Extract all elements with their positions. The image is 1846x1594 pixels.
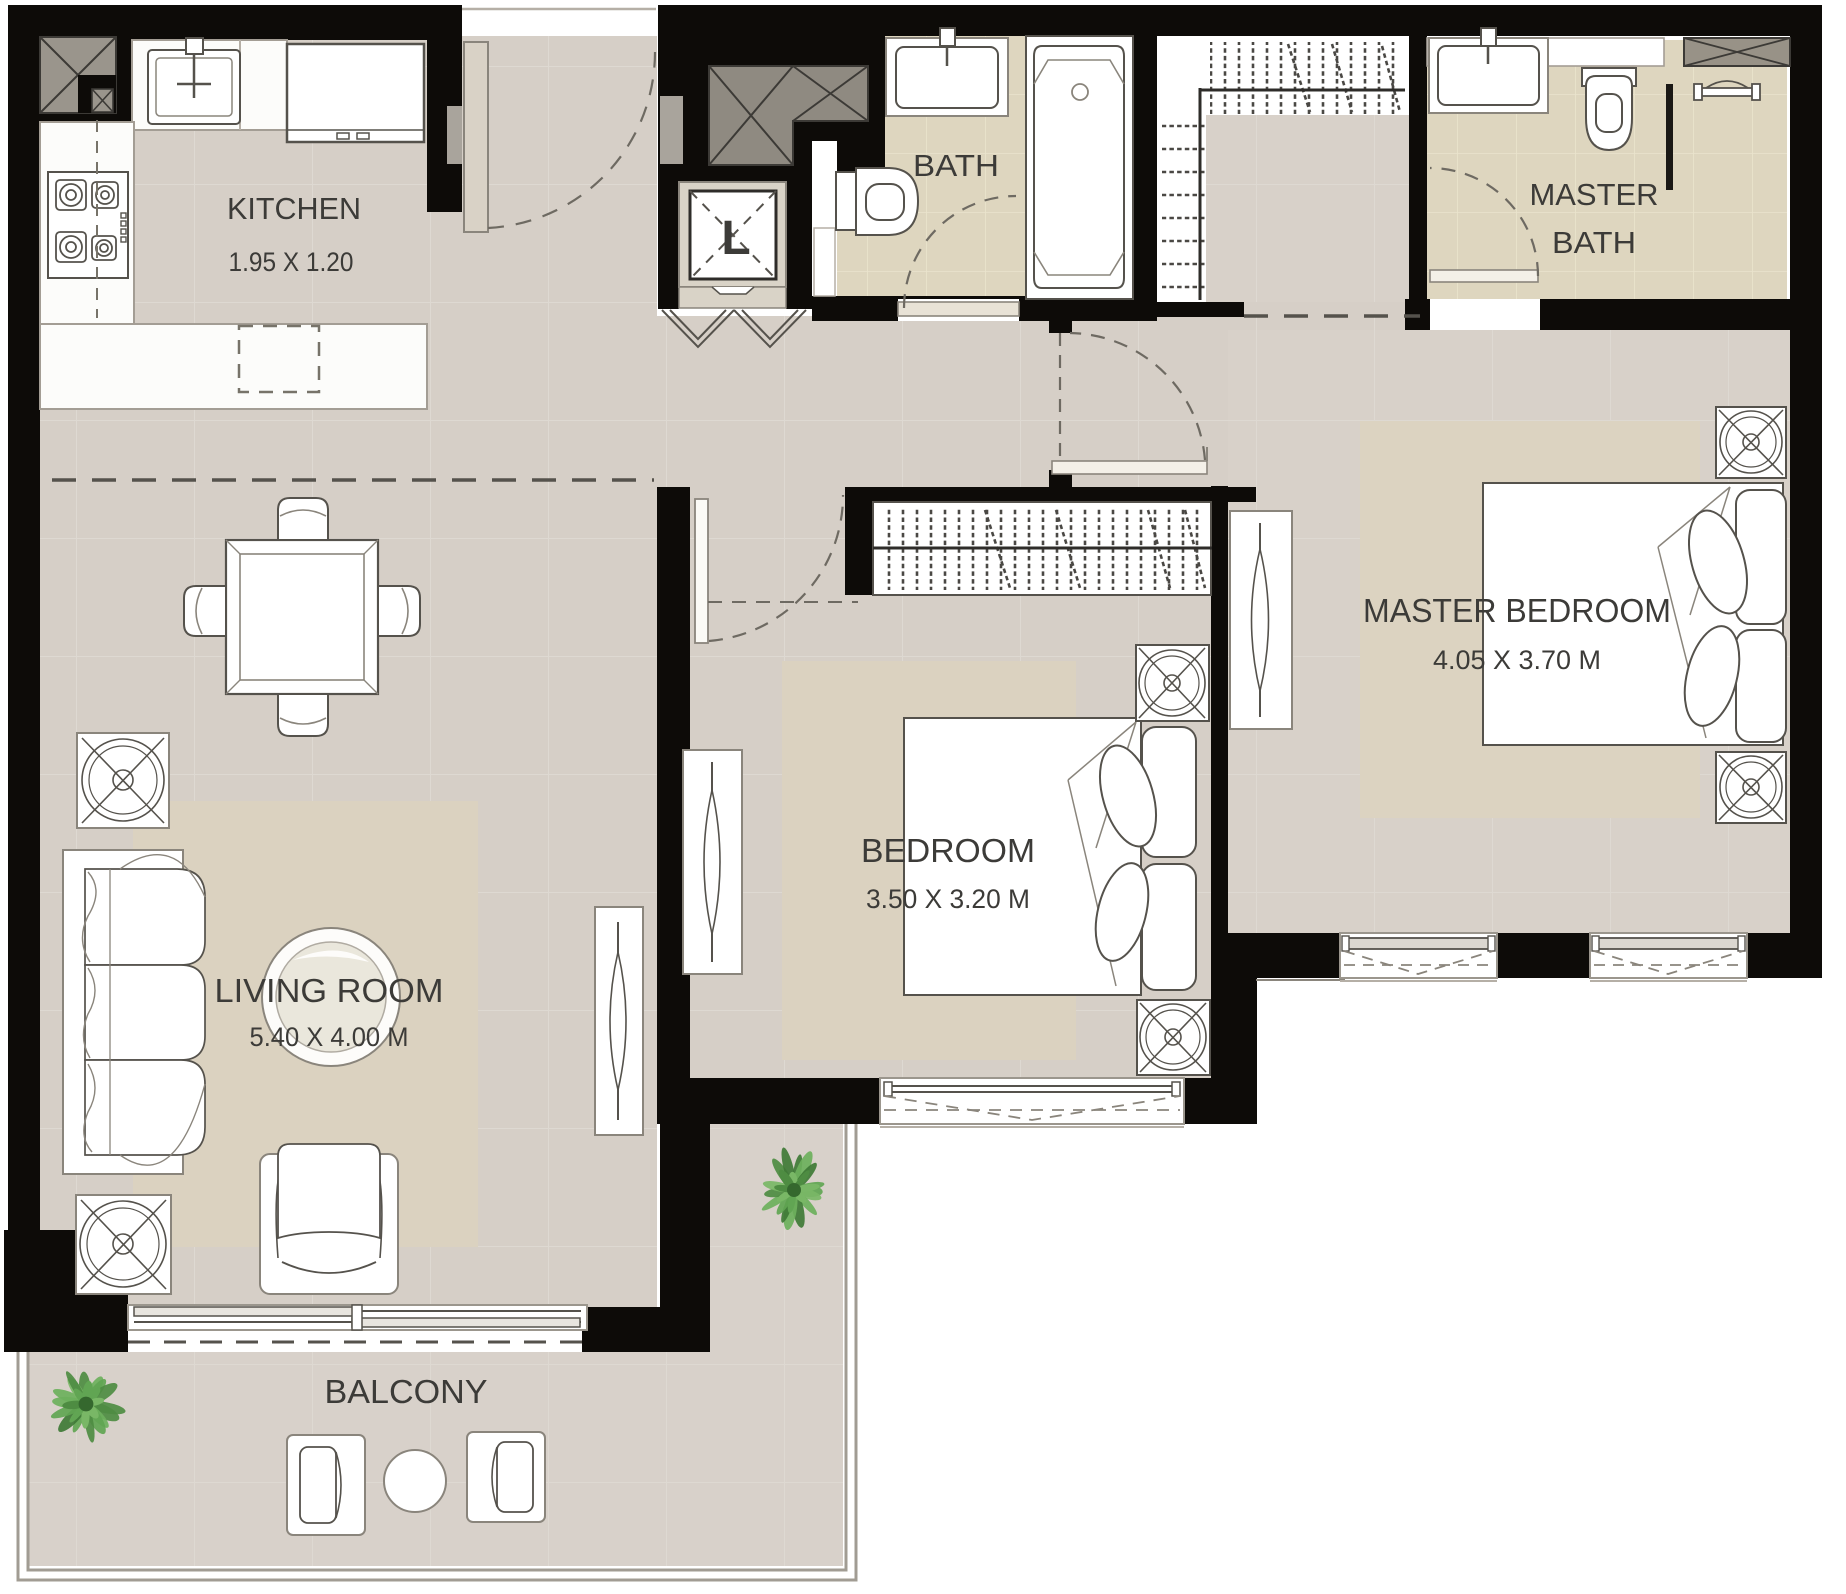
svg-text:L: L (721, 212, 750, 265)
svg-text:4.05 X 3.70 M: 4.05 X 3.70 M (1433, 645, 1601, 675)
svg-text:BEDROOM: BEDROOM (861, 832, 1035, 869)
svg-text:KITCHEN: KITCHEN (227, 191, 361, 226)
svg-text:LIVING ROOM: LIVING ROOM (215, 972, 444, 1009)
svg-text:BALCONY: BALCONY (325, 1373, 488, 1410)
svg-text:5.40 X 4.00 M: 5.40 X 4.00 M (250, 1022, 409, 1052)
svg-text:MASTER BEDROOM: MASTER BEDROOM (1363, 592, 1671, 629)
svg-text:BATH: BATH (913, 148, 999, 183)
svg-text:3.50 X 3.20 M: 3.50 X 3.20 M (866, 884, 1030, 914)
svg-text:BATH: BATH (1552, 225, 1636, 260)
svg-text:MASTER: MASTER (1530, 177, 1659, 212)
svg-text:1.95 X 1.20: 1.95 X 1.20 (229, 247, 354, 277)
